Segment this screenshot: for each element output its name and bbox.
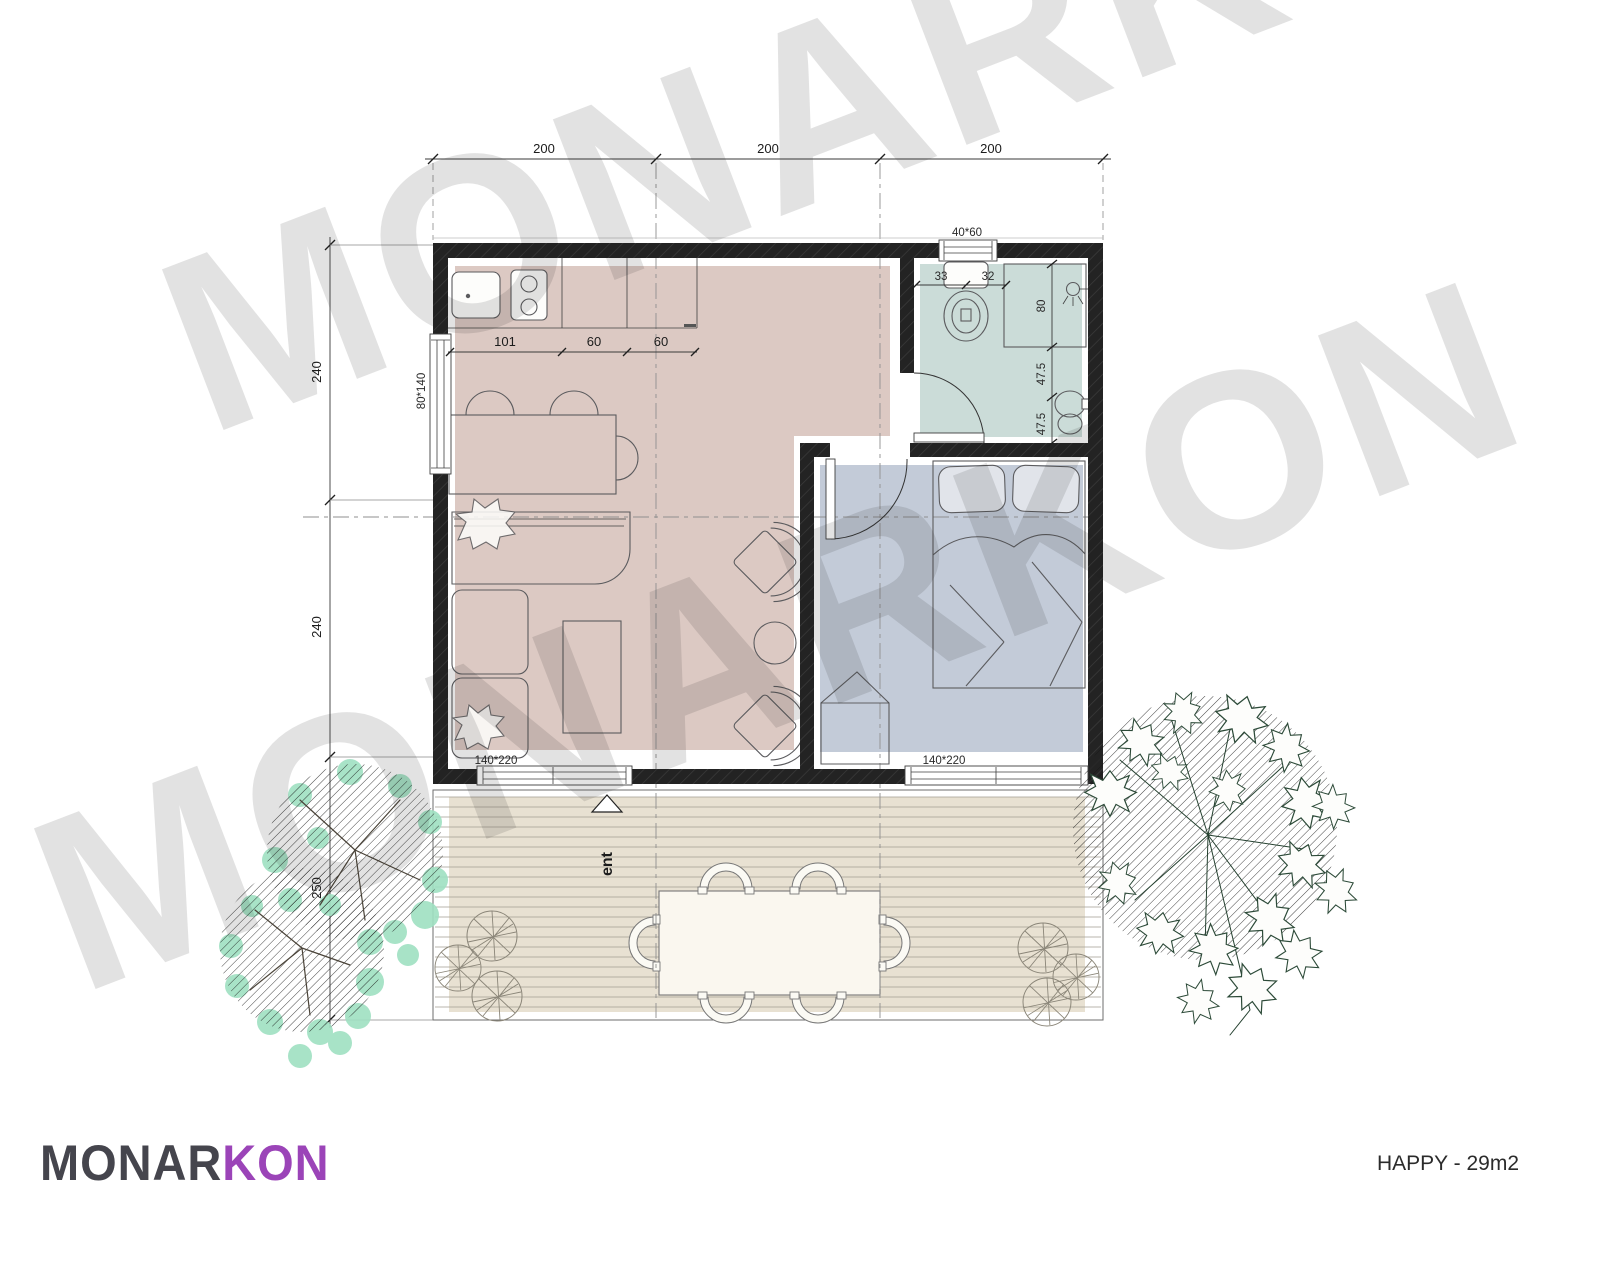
logo-text-primary: MONAR [40,1135,222,1191]
bedroom-window-label: 140*220 [923,755,966,767]
floorplan-page: 200 200 200 240 240 250 101 60 60 33 32 [0,0,1600,1280]
plan-title: HAPPY - 29m2 [1377,1152,1519,1176]
outdoor-dining-table [659,891,880,995]
bath-window-label: 40*60 [952,227,982,239]
dim-label: 32 [982,271,995,283]
dim-label: 80 [1036,300,1048,313]
entrance-label: ent [599,851,616,876]
floorplan-drawing: 200 200 200 240 240 250 101 60 60 33 32 [0,0,1600,1280]
logo-text-accent: KON [222,1135,329,1191]
dim-label: 33 [935,271,948,283]
dim-label: 60 [654,334,668,349]
monarkon-logo: MONARKON [40,1134,330,1192]
dim-label: 240 [309,616,324,638]
bathroom-window [939,240,997,261]
bedroom-window [905,766,1088,785]
tree-right [1073,687,1363,1035]
